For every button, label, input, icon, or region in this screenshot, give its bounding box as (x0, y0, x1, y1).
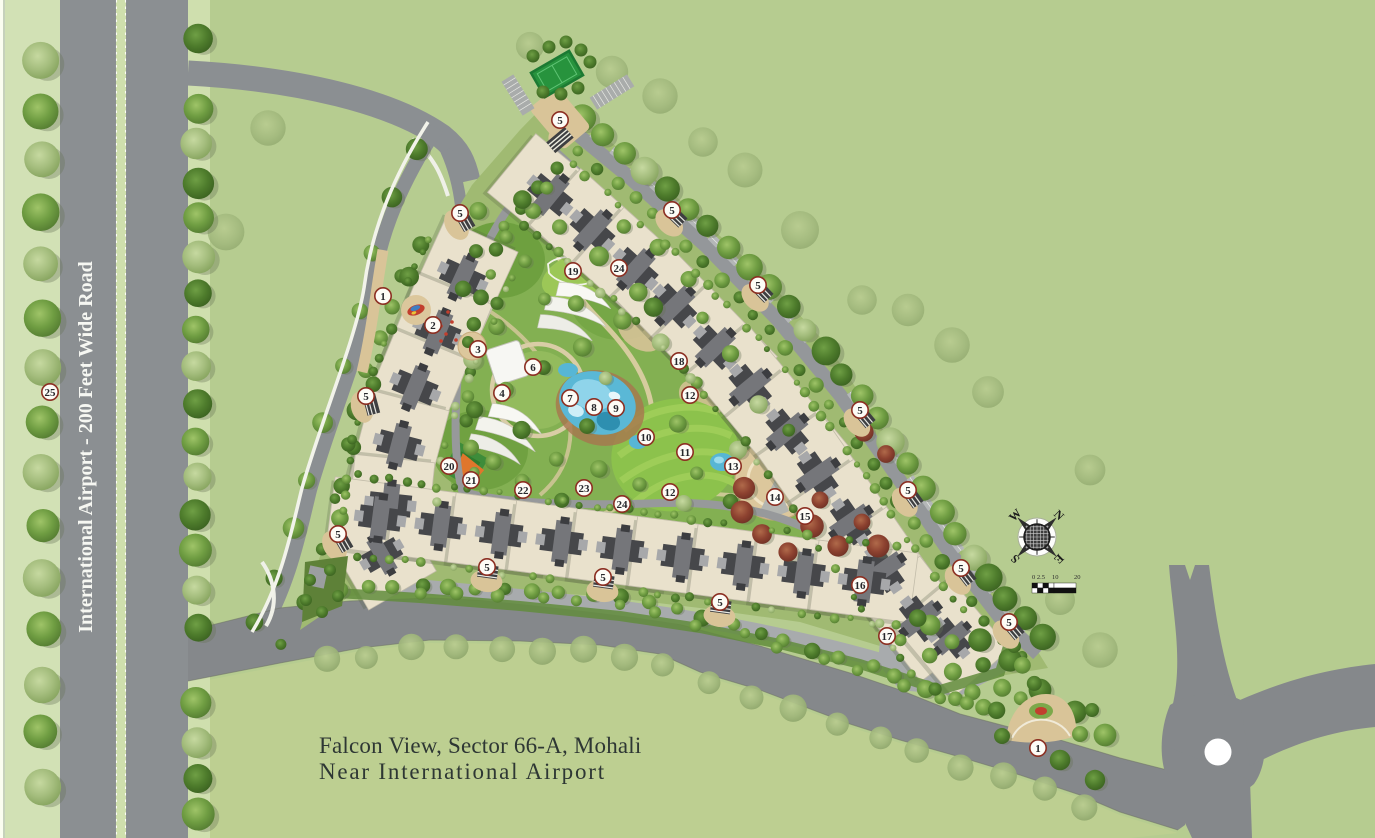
svg-text:8: 8 (591, 402, 597, 414)
svg-text:11: 11 (680, 447, 690, 459)
svg-text:10: 10 (1052, 574, 1059, 581)
svg-text:2: 2 (430, 320, 436, 332)
svg-text:23: 23 (579, 483, 591, 495)
svg-text:15: 15 (800, 511, 812, 523)
svg-text:International Airport - 200 Fe: International Airport - 200 Feet Wide Ro… (75, 261, 97, 632)
svg-text:5: 5 (1006, 617, 1012, 629)
svg-text:1: 1 (1035, 743, 1041, 755)
svg-text:5: 5 (958, 563, 964, 575)
svg-text:18: 18 (674, 356, 686, 368)
svg-text:5: 5 (669, 205, 675, 217)
svg-text:5: 5 (717, 597, 723, 609)
svg-text:24: 24 (614, 263, 626, 275)
svg-text:Falcon View, Sector 66-A, Moha: Falcon View, Sector 66-A, Mohali (319, 733, 642, 758)
svg-text:6: 6 (530, 362, 536, 374)
svg-text:5: 5 (363, 391, 369, 403)
svg-text:25: 25 (45, 387, 57, 399)
svg-text:9: 9 (613, 403, 619, 415)
svg-text:0 2.5: 0 2.5 (1032, 574, 1045, 581)
svg-text:5: 5 (857, 405, 863, 417)
svg-text:13: 13 (728, 461, 740, 473)
svg-text:22: 22 (518, 485, 530, 497)
svg-text:16: 16 (855, 580, 867, 592)
svg-text:1: 1 (380, 291, 386, 303)
svg-text:14: 14 (770, 492, 782, 504)
svg-text:5: 5 (335, 529, 341, 541)
svg-text:10: 10 (641, 432, 653, 444)
svg-text:5: 5 (755, 280, 761, 292)
svg-text:4: 4 (499, 388, 505, 400)
svg-text:5: 5 (484, 562, 490, 574)
svg-text:7: 7 (567, 393, 573, 405)
svg-text:5: 5 (600, 572, 606, 584)
svg-text:21: 21 (466, 475, 477, 487)
svg-text:5: 5 (457, 208, 463, 220)
svg-text:19: 19 (568, 266, 580, 278)
svg-text:24: 24 (617, 499, 629, 511)
svg-text:3: 3 (475, 344, 481, 356)
svg-text:Near International Airport: Near International Airport (319, 759, 606, 784)
svg-text:20: 20 (444, 461, 456, 473)
svg-text:12: 12 (665, 487, 677, 499)
svg-text:12: 12 (685, 390, 697, 402)
svg-text:20: 20 (1074, 574, 1081, 581)
svg-text:17: 17 (882, 631, 894, 643)
svg-text:5: 5 (905, 485, 911, 497)
svg-text:5: 5 (557, 115, 563, 127)
